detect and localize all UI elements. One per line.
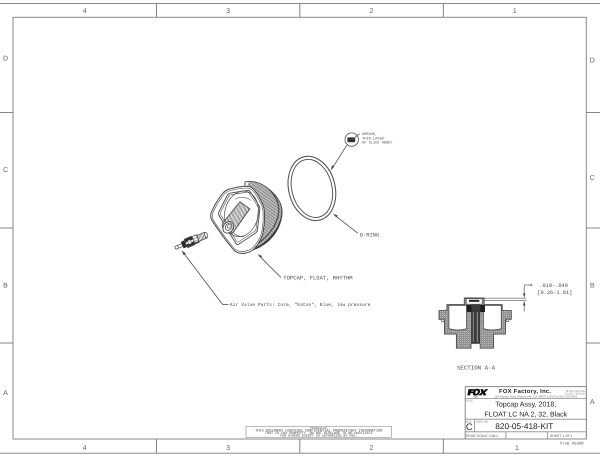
svg-text:4: 4 [83,8,87,15]
svg-text:TITLE: TITLE [466,400,473,403]
svg-text:Air Valve Parts: Core, "Eaton": Air Valve Parts: Core, "Eaton", Blue, lo… [230,302,371,308]
svg-text:PROE SCALE 2.00:1: PROE SCALE 2.00:1 [466,434,498,438]
svg-text:3: 3 [226,8,230,15]
svg-text:820-05-418-KIT: 820-05-418-KIT [495,421,553,431]
svg-text:O-RING: O-RING [360,232,379,238]
svg-text:DWG. NO.: DWG. NO. [476,420,489,423]
svg-text:2: 2 [370,445,374,452]
svg-text:B: B [590,283,595,290]
svg-text:1: 1 [513,8,517,15]
svg-text:[0.26-1.01]: [0.26-1.01] [537,290,572,296]
svg-text:D: D [3,56,8,63]
svg-text:TOPCAP, FLOAT, RHYTHM: TOPCAP, FLOAT, RHYTHM [283,275,352,282]
svg-text:130 Hanger Way, Watsonville, C: 130 Hanger Way, Watsonville, CA 95076 US… [494,394,577,398]
svg-text:FLOAT LC NA 2, 32, Black: FLOAT LC NA 2, 32, Black [484,410,567,418]
svg-text:1: 1 [515,445,519,452]
svg-text:D: D [590,58,595,65]
svg-text:C: C [3,167,8,174]
svg-text:C: C [466,422,473,433]
svg-text:C: C [590,175,595,182]
svg-text:.010-.040: .010-.040 [539,283,568,289]
svg-text:4: 4 [83,445,87,452]
svg-text:A: A [590,399,595,406]
svg-text:FOR OTHERS EXCEPT AS AUTHORIZE: FOR OTHERS EXCEPT AS AUTHORIZED BY FOX. [280,433,357,437]
svg-text:2: 2 [370,8,374,15]
svg-text:Topcap Assy, 2018,: Topcap Assy, 2018, [495,401,556,409]
svg-text:SHEET 1 OF 1: SHEET 1 OF 1 [550,434,573,438]
svg-text:SECTION A-A: SECTION A-A [457,365,496,372]
svg-text:A: A [3,390,8,397]
svg-text:B: B [3,283,8,290]
svg-text:ProE ASSEM: ProE ASSEM [560,442,584,447]
svg-text:3: 3 [226,445,230,452]
svg-text:OF SLICK HONEY: OF SLICK HONEY [362,141,393,146]
